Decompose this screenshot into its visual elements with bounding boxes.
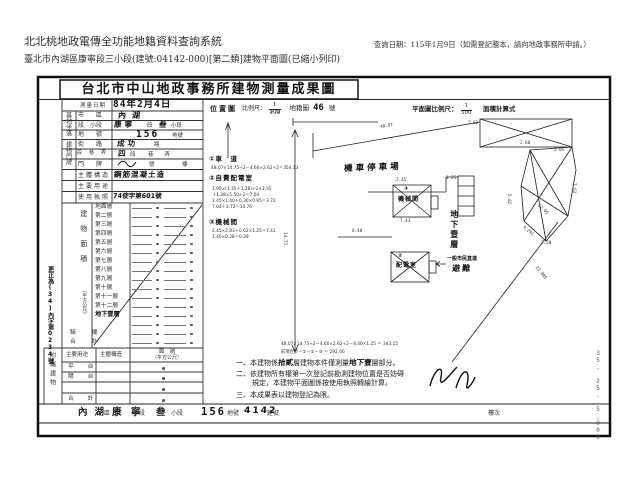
blank-leader — [132, 271, 152, 272]
footer-section-label: 段 — [139, 411, 145, 418]
floor-row: 第四層 — [62, 230, 203, 239]
floor-row: 第三層 — [62, 221, 203, 230]
floor-name: 第三層 — [95, 222, 112, 228]
leader-dot — [156, 342, 159, 345]
calc-formula: 2.45×2.83＋0.62×1.25＝7.43 — [212, 230, 276, 235]
note-1-handwritten-floors: 拾貳 — [278, 359, 294, 367]
blank-leader — [164, 217, 186, 218]
footer-subsection: 叁 — [156, 408, 166, 418]
dimension-label: 2.05 — [554, 149, 564, 154]
leader-dot — [156, 297, 159, 300]
floor-row: 第八層 — [62, 266, 203, 275]
signature-scribble — [430, 367, 475, 388]
note-2-line2: 規定，本建物平面圖係按使用執照轉繪計算。 — [252, 380, 392, 388]
note-2-line1: 二、依建物所有權第一次登記前勘測建物位置是否妨碍 — [236, 371, 404, 379]
door-no-label: 號 — [149, 162, 155, 168]
license-label: 使用執照 — [78, 195, 110, 202]
dimension-label: 4.60 — [270, 112, 280, 117]
footer-district-label: 區 — [104, 411, 110, 418]
blank-leader — [164, 271, 186, 272]
street-value: 成功 — [117, 140, 139, 148]
dimension-label: 7.43 — [400, 220, 410, 225]
floor-name: 合 計 — [70, 339, 102, 345]
site-city-value: 內湖 — [118, 112, 147, 121]
street-label: 街 路 — [78, 142, 102, 149]
street-suffix: 路 — [154, 142, 160, 148]
footer-floor-label: 樓次 — [488, 411, 500, 418]
leader-dot — [156, 225, 159, 228]
blank-leader — [132, 316, 152, 317]
floor-row: 第十一層 — [62, 293, 203, 302]
blank-leader — [164, 316, 186, 317]
annex-total-label: 合 計 — [68, 396, 97, 402]
blank-leader — [132, 280, 152, 281]
plan-scale-label: 平面圖比例尺： — [412, 106, 458, 113]
margin-correction-note: 更正為(34)內字第0234號 — [46, 266, 53, 354]
annex-col-structure: 主體構造 — [100, 352, 122, 358]
lane-suffix: 巷 弄 — [148, 152, 170, 158]
leader-dot — [190, 252, 193, 255]
blank-leader — [132, 253, 152, 254]
note-1-text: 一、本建物係 — [236, 359, 278, 367]
leader-dot — [190, 279, 193, 282]
blank-leader — [164, 226, 186, 227]
leader-dot — [162, 399, 165, 402]
note-1: 一、本建物係拾貳層建物本件僅測量地下壹層部分。 — [236, 359, 400, 368]
leader-dot — [190, 270, 193, 273]
floor-name: 騎 樓 — [70, 330, 102, 336]
calc-formula: 2.45×1.40＋0.30×0.95＝3.72 — [212, 200, 276, 205]
floor-row: 地面層 — [62, 203, 203, 212]
blank-leader — [164, 262, 186, 263]
leader-dot — [156, 261, 159, 264]
plan-scale-suffix: 面積計算式 — [483, 106, 516, 113]
fraction-denominator: 500 — [461, 111, 473, 117]
annex-row-name: 陽 台 — [68, 374, 97, 380]
floor-name: 第六層 — [95, 249, 112, 255]
floor-name: 第九層 — [95, 276, 112, 282]
document-title: 台北市中山地政事務所建物測量成果圖 — [60, 83, 358, 97]
blank-leader — [132, 244, 152, 245]
calc-item-heading: ①車 道 — [209, 156, 238, 163]
leader-dot — [190, 342, 193, 345]
lane-mid-label: 段 — [130, 152, 136, 158]
lane-label: 段 巷 弄 — [77, 151, 107, 157]
footer-building-no-label: 建號 — [267, 411, 279, 418]
structure-value: 鋼筋混凝土造 — [114, 171, 166, 179]
floor-name: 第八層 — [95, 267, 112, 273]
machine-room-number: ③ — [404, 187, 408, 193]
footer-section: 康 寧 — [112, 408, 141, 418]
floor-row: 第六層 — [62, 248, 203, 257]
floor-row: 第九層 — [62, 275, 203, 284]
machine-room-label: 機械間 — [398, 197, 419, 204]
land-no-label: 地 號 — [78, 132, 102, 139]
floor-name: 地面層 — [95, 204, 112, 210]
calc-formula: 7.04＋3.72＝10.76 — [212, 206, 252, 211]
footer-land-no-label: 地號 — [227, 411, 239, 418]
plan-scale-fraction: 1500 — [461, 104, 473, 116]
floor-name: 第十一層 — [95, 294, 118, 300]
main-use-label: 主要用途 — [78, 184, 110, 191]
calc-formula: 48.07×14.75÷2－4.60×2.62÷2＝354.13 — [211, 167, 298, 172]
calc-formula: 1.40×0.28＝0.39 — [212, 236, 249, 241]
site-section-label: 段 小段 — [78, 123, 102, 130]
leader-dot — [190, 288, 193, 291]
door-floor-label: 樓 — [182, 162, 188, 168]
floor-row: 合 計 — [62, 338, 203, 347]
floor-name: 地下壹層 — [95, 312, 120, 319]
page: { "page_header": { "system_name": "北北桃地政… — [0, 0, 640, 480]
leader-dot — [190, 234, 193, 237]
blank-leader — [164, 343, 186, 344]
calc-formula: ＋1.28×1.50÷2＝7.04 — [212, 194, 259, 199]
query-date-note: 查詢日期：115年1月9日（如需登記謄本，請向地政事務所申請。） — [374, 41, 591, 49]
survey-date-value: 84年2月4日 — [113, 100, 171, 110]
leader-dot — [156, 234, 159, 237]
blank-leader — [132, 289, 152, 290]
blank-leader — [132, 298, 152, 299]
note-3: 三、本成果表以建物登記為限。 — [236, 392, 334, 400]
annex-col-area-unit: （平方公尺） — [134, 356, 200, 362]
leader-dot — [156, 333, 159, 336]
document-caption: 臺北市內湖區康寧段三小段(建號:04142-000)[第二類]建物平面圖(已縮小… — [24, 56, 340, 66]
blank-leader — [164, 244, 186, 245]
power-room-number: ② — [398, 254, 402, 260]
door-label: 門 牌 — [78, 162, 102, 169]
license-value: 74使字第601號 — [113, 193, 162, 200]
site-subsection-value: 叁 — [159, 121, 167, 129]
leader-dot — [162, 367, 165, 370]
leader-dot — [190, 261, 193, 264]
total-calc-line2: 前項合計－①－②－③ ＝ 292.66 — [281, 351, 345, 356]
blank-leader — [132, 217, 152, 218]
footer-land-no: 156 — [201, 407, 226, 419]
annex-row: 陽 台 — [62, 373, 203, 383]
dimension-label: 2.60 — [520, 142, 530, 147]
site-subsection-label: 小段 — [171, 123, 182, 129]
leader-dot — [190, 216, 193, 219]
leader-dot — [190, 297, 193, 300]
leader-dot — [156, 270, 159, 273]
floor-row — [62, 320, 203, 329]
side-scan-code: 35. 25. 5,000 — [594, 350, 601, 408]
dimension-label: 8.40 — [352, 230, 362, 235]
dimension-label: 7.62 — [570, 183, 575, 193]
power-room-label: 配電室 — [396, 263, 417, 270]
blank-leader — [164, 325, 186, 326]
basement-floor-label: 地下壹層 — [449, 210, 458, 256]
leader-dot — [190, 333, 193, 336]
system-title: 北北桃地政電傳全功能地籍資料查詢系統 — [24, 36, 222, 48]
leader-dot — [156, 252, 159, 255]
leader-dot — [190, 306, 193, 309]
floor-name: 第七層 — [95, 258, 112, 264]
leader-dot — [190, 324, 193, 327]
leader-dot — [156, 216, 159, 219]
site-section-value: 康寧 — [114, 121, 136, 129]
blank-leader — [164, 280, 186, 281]
shelter-note-line1: 一般市民直達 — [447, 257, 477, 263]
calc-item-heading: ②自費配電室 — [209, 175, 253, 182]
dimension-label: 2.45 — [396, 179, 406, 184]
floor-name: 第二層 — [95, 213, 112, 219]
location-scale-label: 比例尺： — [242, 106, 266, 113]
annex-row: 平 台 — [62, 363, 203, 373]
structure-label: 主體構造 — [78, 173, 110, 180]
blank-leader — [132, 343, 152, 344]
blank-leader — [132, 334, 152, 335]
annex-col-use: 主要用途 — [66, 352, 88, 358]
location-map-label: 位置圖 — [210, 105, 237, 113]
leader-dot — [190, 243, 193, 246]
plan-scale-row: 平面圖比例尺： 1500 面積計算式 — [412, 104, 516, 116]
blank-leader — [164, 208, 186, 209]
dimension-label: 3.20 — [541, 242, 551, 247]
land-no-suffix: 地號 — [172, 133, 183, 139]
blank-leader — [132, 226, 152, 227]
leader-dot — [162, 377, 165, 380]
leader-dot — [156, 324, 159, 327]
blank-leader — [132, 235, 152, 236]
blank-leader — [164, 307, 186, 308]
address-group-label: 建物門牌 — [64, 141, 71, 169]
map-sheet-suffix: 號 — [329, 105, 336, 112]
leader-dot — [156, 207, 159, 210]
floor-row: 第二層 — [62, 212, 203, 221]
note-1-handwritten-level: 地下壹 — [349, 359, 372, 367]
calc-item-heading: ③機械間 — [209, 219, 238, 226]
floor-row: 地下壹層 — [62, 311, 203, 320]
annex-total-row: 合 計 — [62, 395, 203, 405]
map-sheet-label: 地籍圖 — [290, 105, 310, 112]
leader-dot — [156, 306, 159, 309]
leader-dot — [156, 288, 159, 291]
site-group-label: 基地坐落 — [64, 112, 71, 140]
blank-leader — [132, 307, 152, 308]
dimension-label: 1.25 — [446, 177, 456, 182]
floor-row: 第十二層 — [62, 302, 203, 311]
basement-plan-lines — [226, 118, 577, 362]
blank-leader — [164, 334, 186, 335]
leader-dot — [190, 207, 193, 210]
floor-name: 第十二層 — [95, 303, 118, 309]
blank-leader — [164, 235, 186, 236]
calc-formula: 1.90×(1.35＋1.28)÷2×3.35 — [212, 188, 271, 193]
dimension-label: 5.82 — [505, 194, 510, 204]
blank-leader — [164, 253, 186, 254]
floor-row: 第七層 — [62, 257, 203, 266]
leader-dot — [190, 225, 193, 228]
dimension-label: 14.75 — [281, 232, 286, 245]
leader-dot — [156, 243, 159, 246]
leader-dot — [190, 315, 193, 318]
blank-leader — [164, 289, 186, 290]
shelter-note-line2: 避難 — [452, 265, 473, 274]
dimension-label: 2.62 — [468, 122, 478, 127]
leader-dot — [162, 388, 165, 391]
lane-value: 四 — [118, 150, 126, 158]
note-1-text: 層部分。 — [372, 359, 400, 367]
floor-name: 第十層 — [95, 285, 112, 291]
blank-leader — [164, 298, 186, 299]
door-number-scribble — [118, 161, 136, 166]
site-city-label: 市 區 — [78, 113, 102, 120]
leader-dot — [156, 315, 159, 318]
blank-leader — [132, 208, 152, 209]
annex-row — [62, 384, 203, 394]
blank-leader — [132, 325, 152, 326]
floor-row: 第十層 — [62, 284, 203, 293]
footer-subsection-label: 小段 — [171, 411, 183, 418]
floor-row: 第五層 — [62, 239, 203, 248]
annex-row-name: 平 台 — [68, 364, 97, 370]
note-1-text: 層建物本件僅測量 — [293, 359, 349, 367]
map-sheet-number: 46 — [313, 104, 324, 114]
land-no-value: 156 — [136, 130, 159, 140]
blank-leader — [132, 262, 152, 263]
survey-date-label: 測量日期 — [80, 103, 106, 109]
total-calc-line1: 48.07×14.75÷2－4.60×2.62÷2－8.40×1.25 ＝ 34… — [281, 343, 398, 348]
leader-dot — [156, 279, 159, 282]
floor-name: 第四層 — [95, 231, 112, 237]
floor-name: 第五層 — [95, 240, 112, 246]
floor-row: 騎 樓 — [62, 329, 203, 338]
